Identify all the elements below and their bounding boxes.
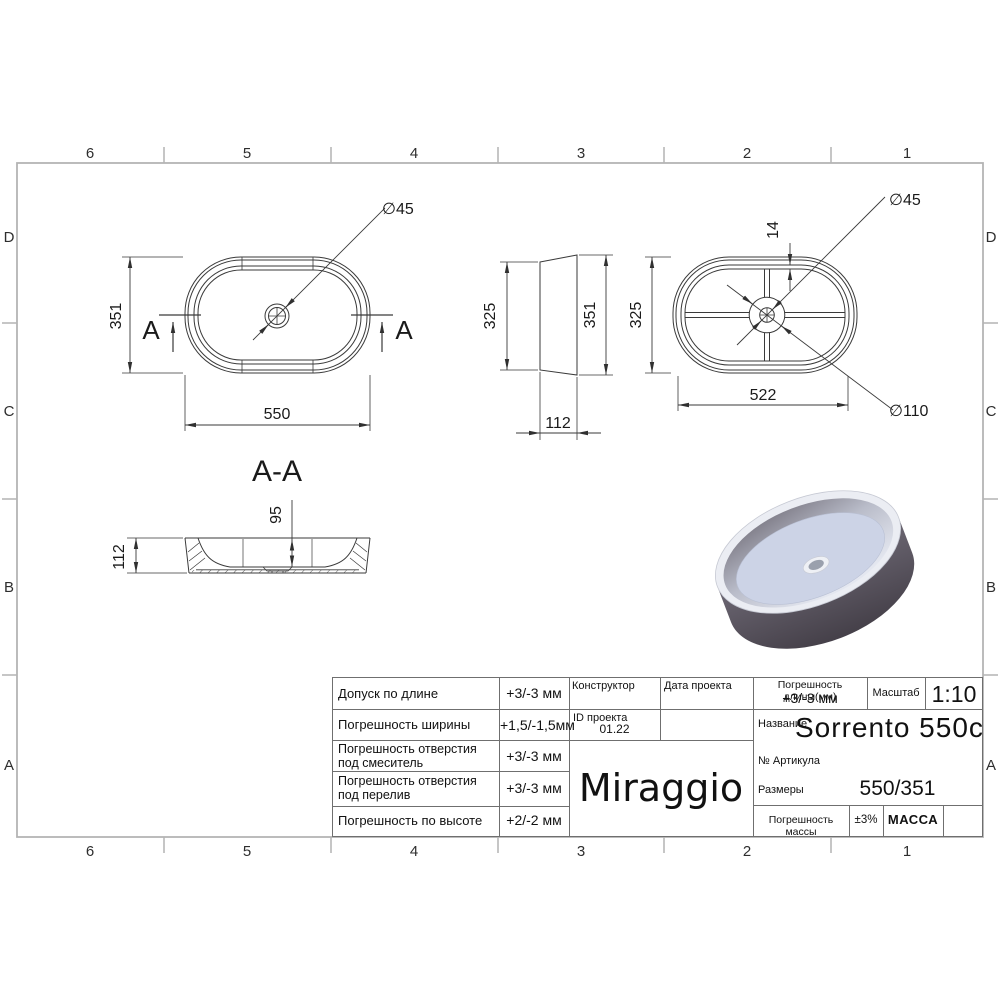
mass-tolerance-value: ±3% bbox=[849, 814, 883, 827]
tolerance-label: Погрешность отверстия под перелив bbox=[338, 775, 496, 802]
side-view bbox=[500, 255, 613, 440]
tolerance-value: +1,5/-1,5мм bbox=[500, 718, 568, 734]
tolerance-value: +3/-3 мм bbox=[500, 781, 568, 797]
product-name: Sorrento 550c bbox=[795, 712, 980, 743]
side-height-dim: 112 bbox=[545, 415, 571, 432]
sizes-value: 550/351 bbox=[850, 777, 945, 801]
bottom-rib-dim: 14 bbox=[765, 221, 782, 239]
section-letter-right: A bbox=[395, 315, 413, 345]
mass-tolerance-label: Погрешность массы bbox=[753, 815, 849, 839]
zone-label-bottom: 6 bbox=[86, 843, 94, 860]
bottom-boss-dia-label: ∅110 bbox=[889, 403, 929, 420]
zone-label-bottom: 1 bbox=[903, 843, 911, 860]
zone-label-right: A bbox=[986, 757, 996, 774]
tolerance-label: Погрешность ширины bbox=[338, 718, 496, 733]
zone-label-left: B bbox=[4, 579, 14, 596]
zone-label-left: C bbox=[4, 403, 15, 420]
zone-label-bottom: 5 bbox=[243, 843, 251, 860]
zone-label-top: 3 bbox=[577, 145, 585, 162]
zone-label-bottom: 4 bbox=[410, 843, 418, 860]
zone-label-top: 6 bbox=[86, 145, 94, 162]
zone-label-top: 2 bbox=[743, 145, 751, 162]
scale-label: Масштаб bbox=[867, 687, 925, 699]
section-view bbox=[127, 500, 370, 573]
tolerance-label: Погрешность по высоте bbox=[338, 814, 496, 829]
mass-label: МАССА bbox=[883, 813, 943, 828]
zone-label-right: B bbox=[986, 579, 996, 596]
section-letter-left: A bbox=[142, 315, 160, 345]
section-hatch bbox=[192, 570, 358, 573]
sizes-label: Размеры bbox=[758, 784, 804, 796]
section-height-dim: 112 bbox=[111, 544, 128, 570]
miraggio-logo: Miraggio bbox=[569, 740, 753, 837]
project-id-value: 01.22 bbox=[569, 723, 660, 736]
bottom-base-length-dim: 522 bbox=[750, 387, 777, 404]
scale-value: 1:10 bbox=[925, 682, 983, 708]
article-label: № Артикула bbox=[758, 755, 820, 767]
zone-label-bottom: 3 bbox=[577, 843, 585, 860]
zone-label-top: 5 bbox=[243, 145, 251, 162]
project-date-label: Дата проекта bbox=[664, 680, 732, 692]
bottom-width-dim: 325 bbox=[628, 302, 645, 329]
zone-label-top: 4 bbox=[410, 145, 418, 162]
zone-label-right: C bbox=[986, 403, 997, 420]
zone-label-top: 1 bbox=[903, 145, 911, 162]
drawing-canvas: 6 5 4 3 2 1 6 5 4 3 2 1 D C B A D C B A bbox=[0, 0, 1000, 1000]
tolerance-label: Допуск по длине bbox=[338, 687, 496, 702]
drawing-sheet: 6 5 4 3 2 1 6 5 4 3 2 1 D C B A D C B A bbox=[0, 0, 1000, 1000]
tolerance-value: +3/-3 мм bbox=[500, 686, 568, 702]
zone-label-left: D bbox=[4, 229, 15, 246]
zone-label-left: A bbox=[4, 757, 14, 774]
bottom-drain-dia-label: ∅45 bbox=[889, 192, 921, 209]
section-title: A-A bbox=[252, 455, 302, 488]
length-tolerance-value: +3/-3 мм bbox=[753, 691, 867, 707]
plan-drain-dia-label: ∅45 bbox=[382, 201, 414, 218]
tolerance-value: +2/-2 мм bbox=[500, 813, 568, 829]
section-depth-dim: 95 bbox=[268, 506, 285, 524]
plan-view bbox=[122, 208, 393, 431]
zone-label-right: D bbox=[986, 229, 997, 246]
side-top-width-dim: 351 bbox=[582, 302, 599, 329]
plan-width-dim: 351 bbox=[108, 303, 125, 330]
zone-label-bottom: 2 bbox=[743, 843, 751, 860]
side-bottom-width-dim: 325 bbox=[482, 303, 499, 330]
constructor-label: Конструктор bbox=[572, 680, 635, 692]
plan-length-dim: 550 bbox=[264, 406, 291, 423]
tolerance-label: Погрешность отверстия под смеситель bbox=[338, 743, 496, 770]
tolerance-value: +3/-3 мм bbox=[500, 749, 568, 765]
render-3d bbox=[698, 467, 931, 673]
